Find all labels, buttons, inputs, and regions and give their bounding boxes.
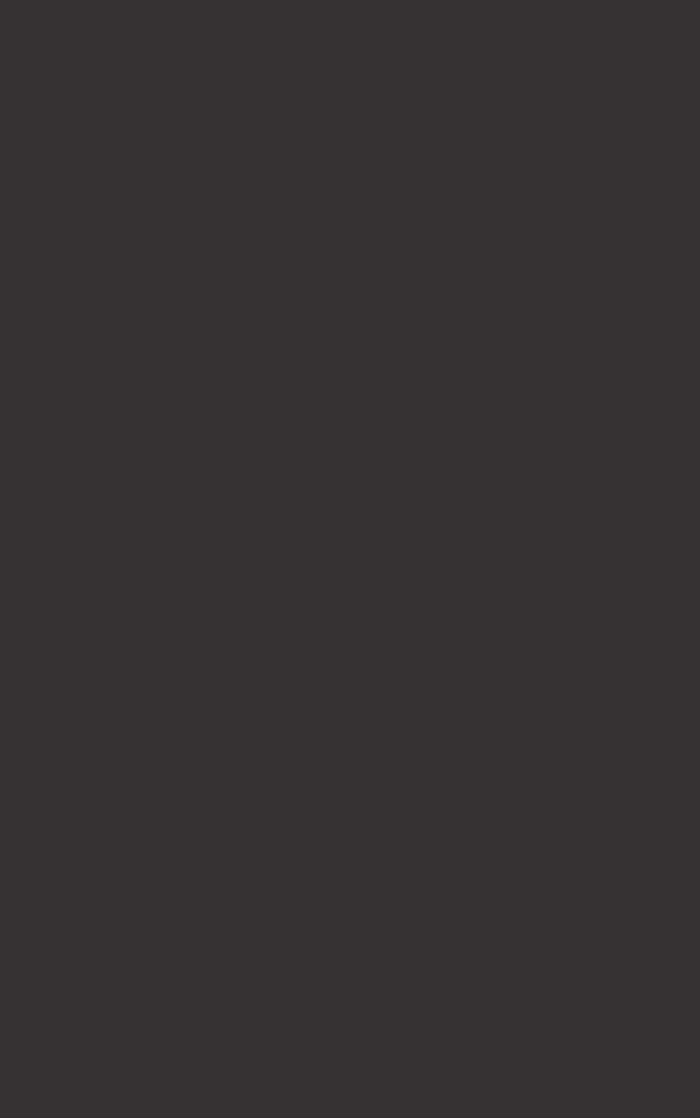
blank-screen: [0, 0, 700, 1118]
